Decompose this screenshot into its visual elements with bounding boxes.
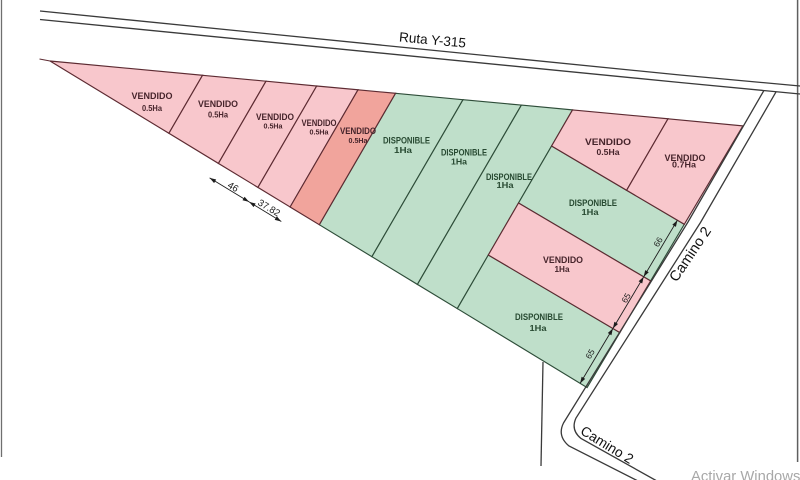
svg-text:1Ha: 1Ha [555, 265, 571, 274]
svg-text:0.5Ha: 0.5Ha [208, 111, 229, 120]
svg-text:0.5Ha: 0.5Ha [264, 122, 284, 131]
svg-text:VENDIDO: VENDIDO [132, 91, 173, 101]
svg-text:DISPONIBLE: DISPONIBLE [441, 148, 487, 158]
svg-text:VENDIDO: VENDIDO [302, 118, 337, 128]
svg-text:VENDIDO: VENDIDO [256, 112, 294, 122]
svg-text:Activar Windows: Activar Windows [691, 469, 800, 480]
svg-text:DISPONIBLE: DISPONIBLE [569, 198, 617, 208]
svg-text:0.5Ha: 0.5Ha [349, 136, 369, 145]
svg-text:VENDIDO: VENDIDO [340, 126, 376, 136]
svg-text:0.5Ha: 0.5Ha [597, 148, 621, 157]
svg-text:1Ha: 1Ha [530, 324, 547, 333]
svg-text:0.5Ha: 0.5Ha [310, 128, 330, 137]
svg-text:0.7Ha: 0.7Ha [672, 161, 697, 170]
svg-text:VENDIDO: VENDIDO [543, 255, 583, 265]
svg-text:1Ha: 1Ha [394, 146, 413, 155]
svg-text:1Ha: 1Ha [451, 158, 467, 167]
svg-text:VENDIDO: VENDIDO [585, 137, 631, 147]
svg-text:DISPONIBLE: DISPONIBLE [383, 136, 430, 146]
svg-text:VENDIDO: VENDIDO [198, 99, 238, 109]
svg-text:1Ha: 1Ha [497, 181, 514, 190]
svg-text:DISPONIBLE: DISPONIBLE [515, 312, 563, 322]
svg-text:1Ha: 1Ha [582, 208, 599, 217]
svg-text:0.5Ha: 0.5Ha [142, 104, 163, 113]
